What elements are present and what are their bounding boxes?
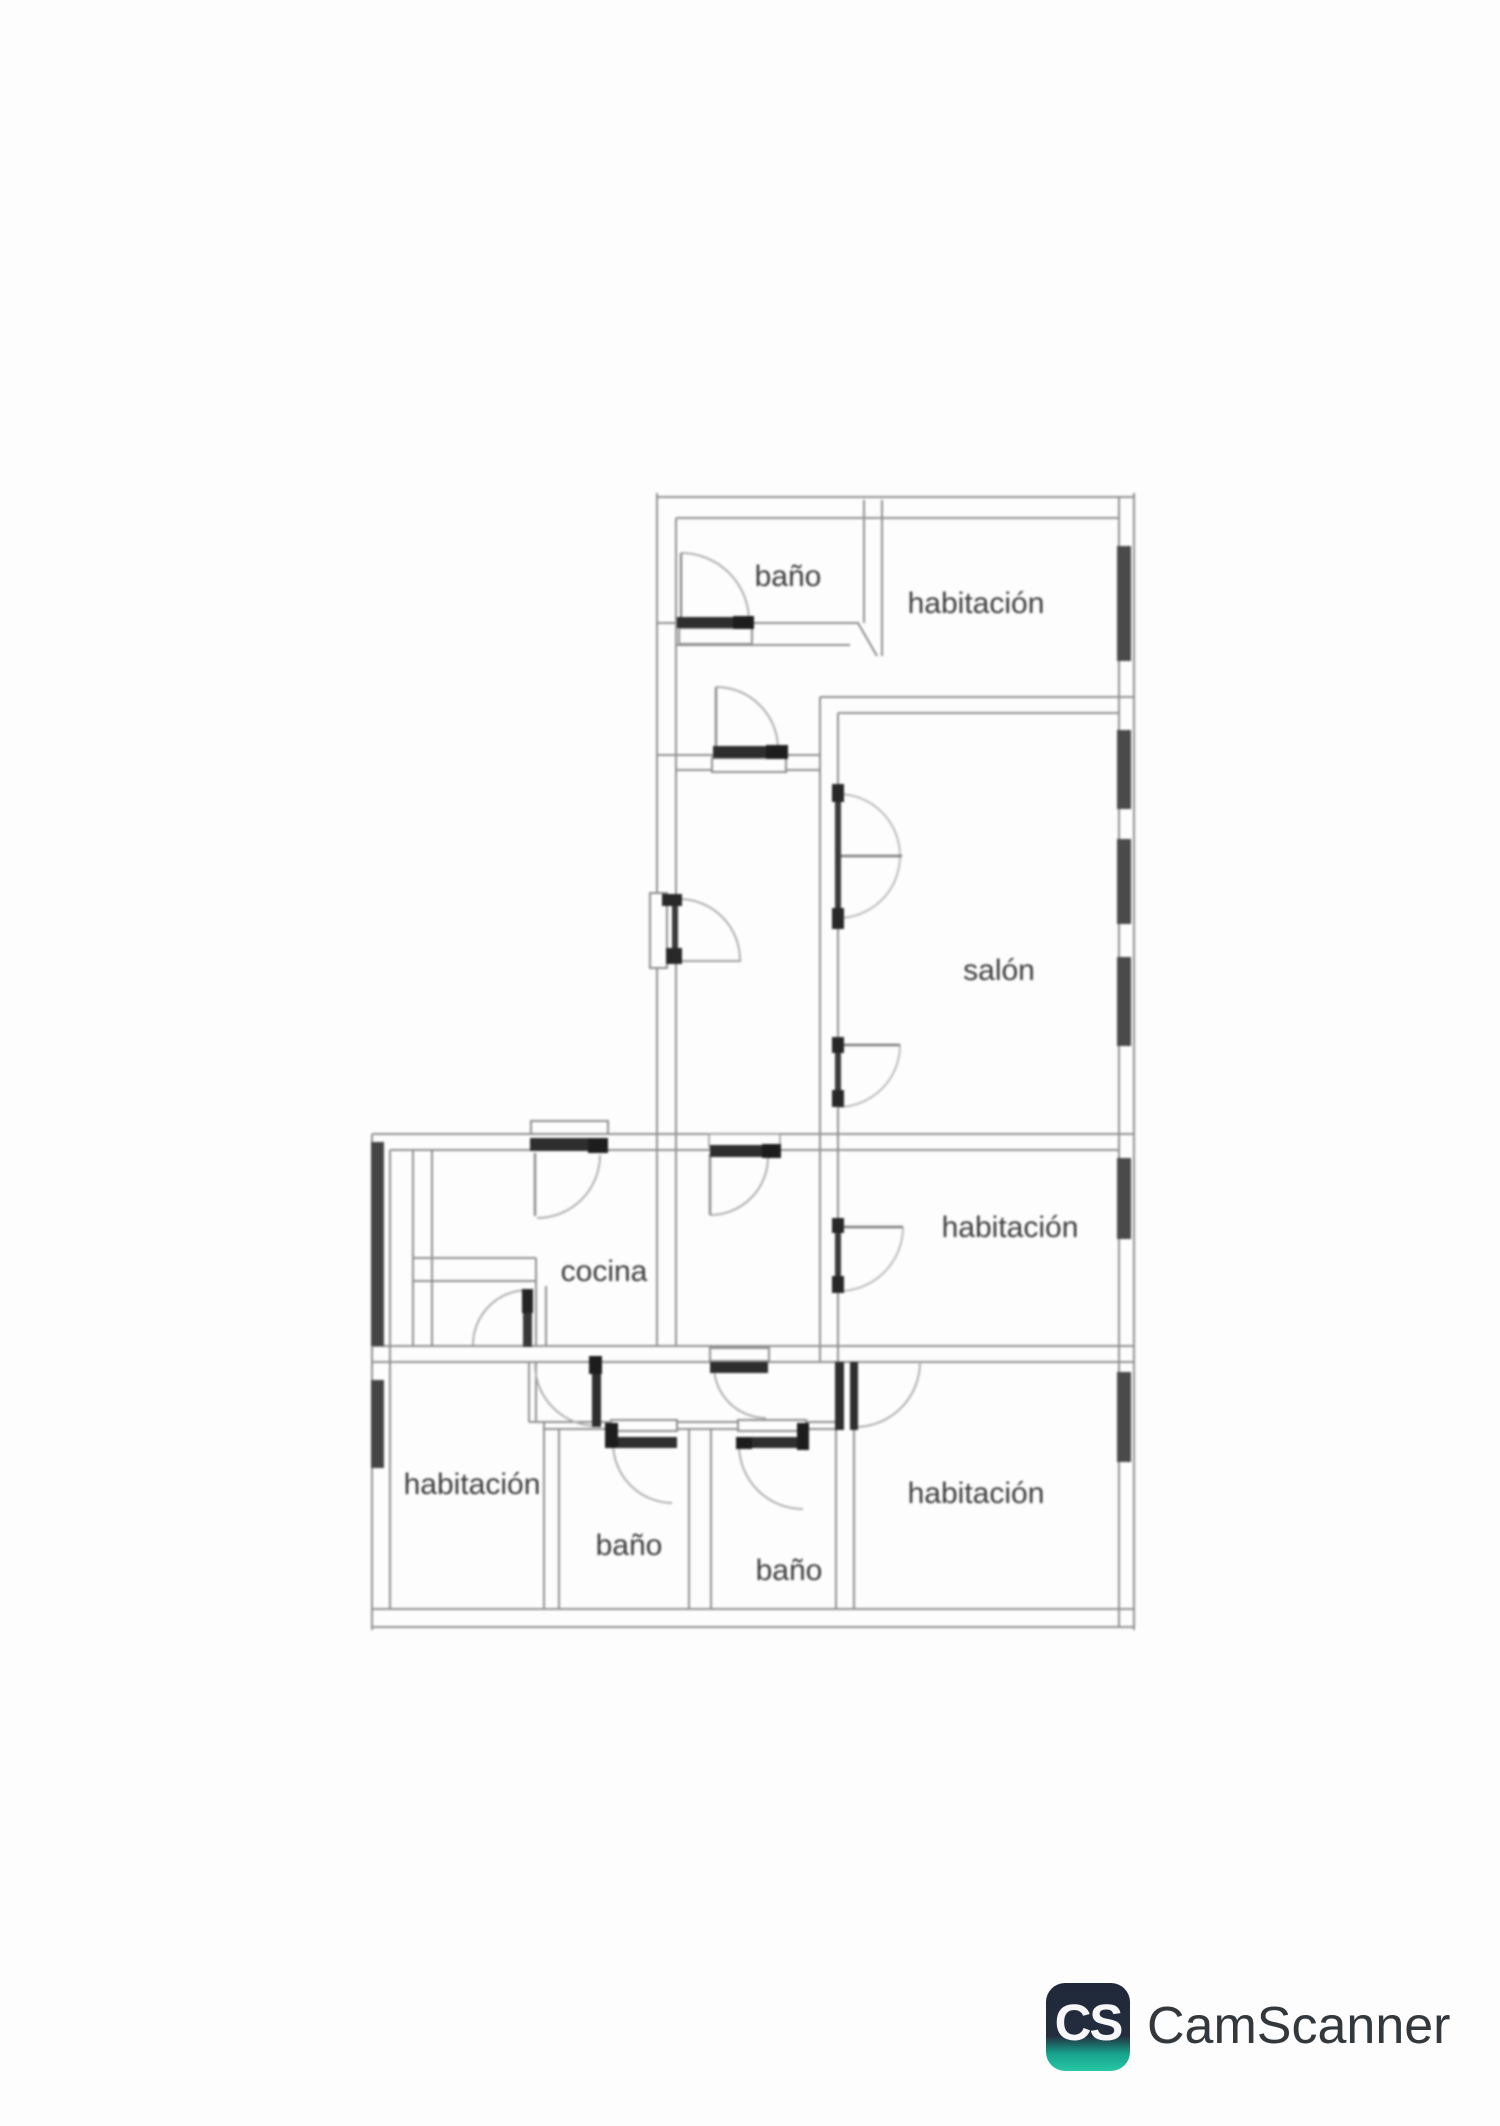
svg-text:CS: CS: [1055, 1994, 1123, 2051]
svg-text:cocina: cocina: [561, 1255, 648, 1288]
svg-text:baño: baño: [756, 1554, 823, 1587]
svg-text:habitación: habitación: [908, 587, 1045, 620]
svg-text:habitación: habitación: [404, 1468, 541, 1501]
svg-text:habitación: habitación: [908, 1477, 1045, 1510]
svg-text:baño: baño: [755, 560, 822, 593]
svg-text:baño: baño: [596, 1529, 663, 1562]
svg-text:salón: salón: [963, 954, 1035, 987]
svg-text:habitación: habitación: [942, 1211, 1079, 1244]
